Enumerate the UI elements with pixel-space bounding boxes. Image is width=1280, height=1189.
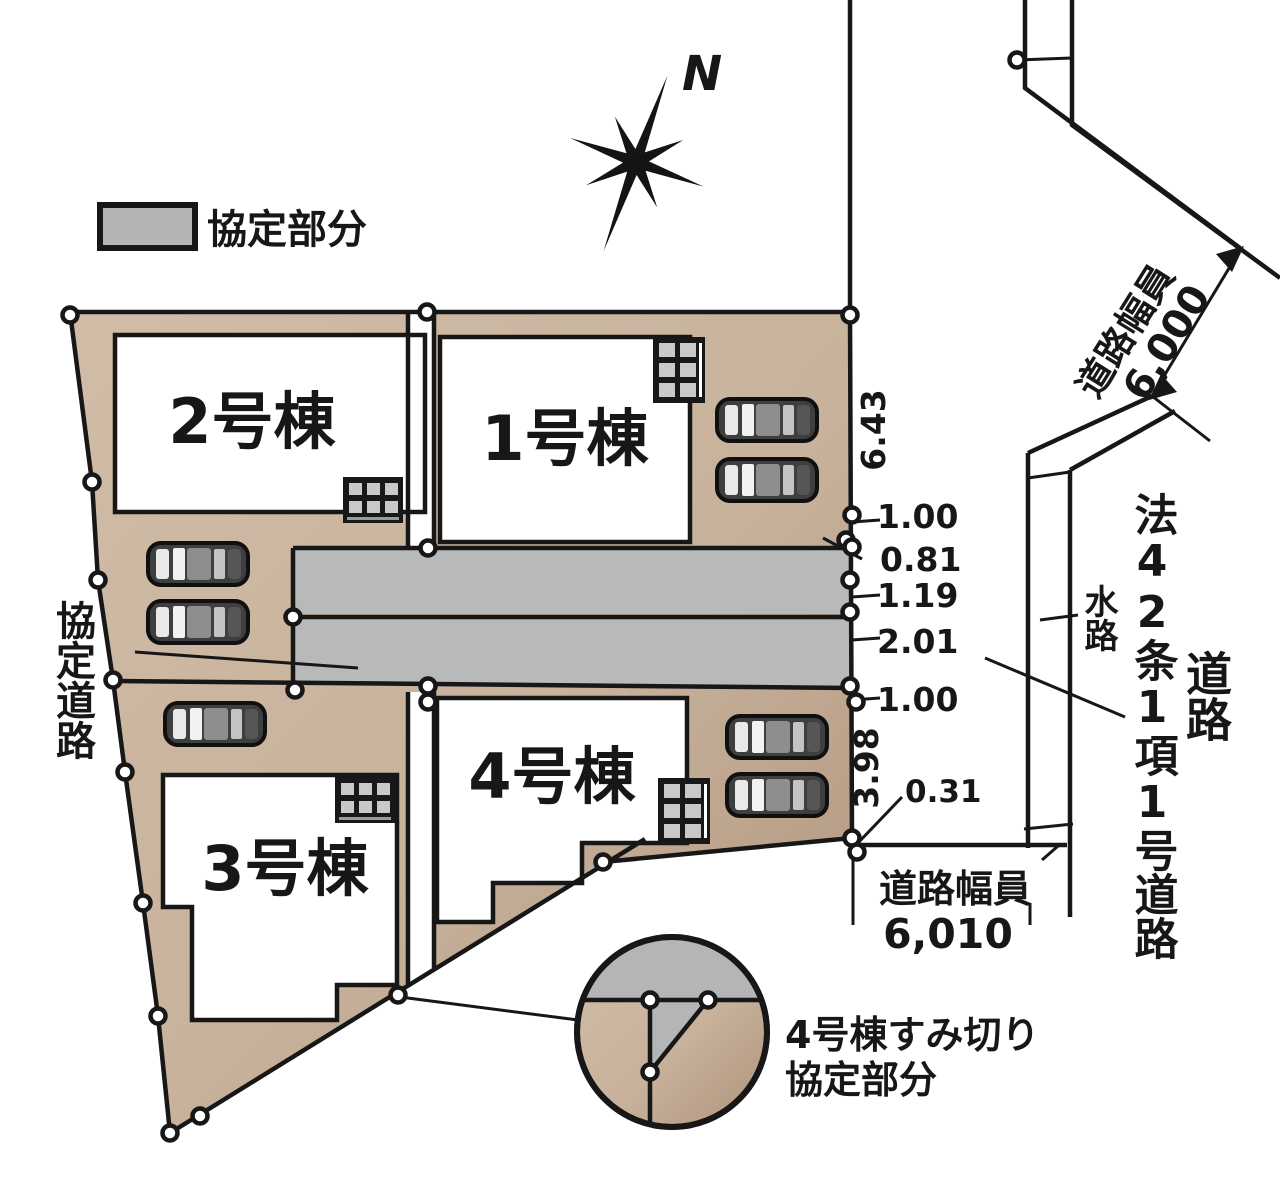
leader-law-road bbox=[985, 658, 1125, 717]
dim-1-00-a: 1.00 bbox=[877, 497, 958, 536]
dim-1-00-b: 1.00 bbox=[877, 680, 958, 719]
lot-divider-gap-3-4 bbox=[408, 692, 434, 984]
waterway-label: 水路 bbox=[1078, 584, 1118, 652]
building-3-label: 3号棟 bbox=[201, 832, 369, 905]
car-icon bbox=[727, 774, 827, 816]
entrance-grid-building-3 bbox=[335, 777, 395, 823]
legend-label: 協定部分 bbox=[207, 207, 367, 253]
agreement-road-label: 協定道路 bbox=[49, 600, 96, 760]
corner-cut-detail bbox=[577, 937, 767, 1127]
car-icon bbox=[148, 601, 248, 643]
detail-callout-line2: 協定部分 bbox=[785, 1058, 937, 1102]
site-plan-page: 協定部分 N 2号棟 1号棟 4号棟 3号棟 6.43 1.00 0.81 1.… bbox=[0, 0, 1280, 1189]
car-icon bbox=[717, 459, 817, 501]
entrance-grid-building-1 bbox=[653, 337, 705, 403]
dim-0-31: 0.31 bbox=[905, 774, 982, 810]
car-icon bbox=[727, 716, 827, 758]
site-plan-drawing: 協定部分 N 2号棟 1号棟 4号棟 3号棟 6.43 1.00 0.81 1.… bbox=[0, 0, 1280, 1189]
legend: 協定部分 bbox=[100, 205, 367, 253]
bottom-road-width-value: 6,010 bbox=[883, 910, 1013, 958]
dim-0-81: 0.81 bbox=[880, 540, 961, 579]
legend-swatch bbox=[100, 205, 195, 248]
car-icon bbox=[717, 399, 817, 441]
dim-3-98: 3.98 bbox=[847, 727, 886, 808]
dim-2-01: 2.01 bbox=[877, 622, 958, 661]
building-2-label: 2号棟 bbox=[168, 385, 336, 458]
building-4-label: 4号棟 bbox=[468, 740, 636, 813]
leader-waterway bbox=[1040, 615, 1078, 620]
bottom-road-width-label: 道路幅員 bbox=[879, 867, 1031, 911]
leader-detail-circle bbox=[400, 997, 578, 1020]
detail-callout-line1: 4号棟すみ切り bbox=[785, 1013, 1039, 1057]
building-1-label: 1号棟 bbox=[481, 402, 649, 475]
entrance-grid-building-4 bbox=[658, 778, 710, 844]
car-icon bbox=[148, 543, 248, 585]
entrance-grid-building-2 bbox=[343, 477, 403, 523]
dim-6-43: 6.43 bbox=[854, 389, 893, 470]
north-label: N bbox=[682, 46, 722, 102]
dim-1-19: 1.19 bbox=[877, 576, 958, 615]
top-road-width-dimension: 道路幅員 6,000 bbox=[1068, 256, 1220, 428]
car-icon bbox=[165, 703, 265, 745]
road-label: 道路 bbox=[1179, 650, 1233, 742]
law-road-label: 法42条1項1号道路 bbox=[1127, 492, 1179, 960]
